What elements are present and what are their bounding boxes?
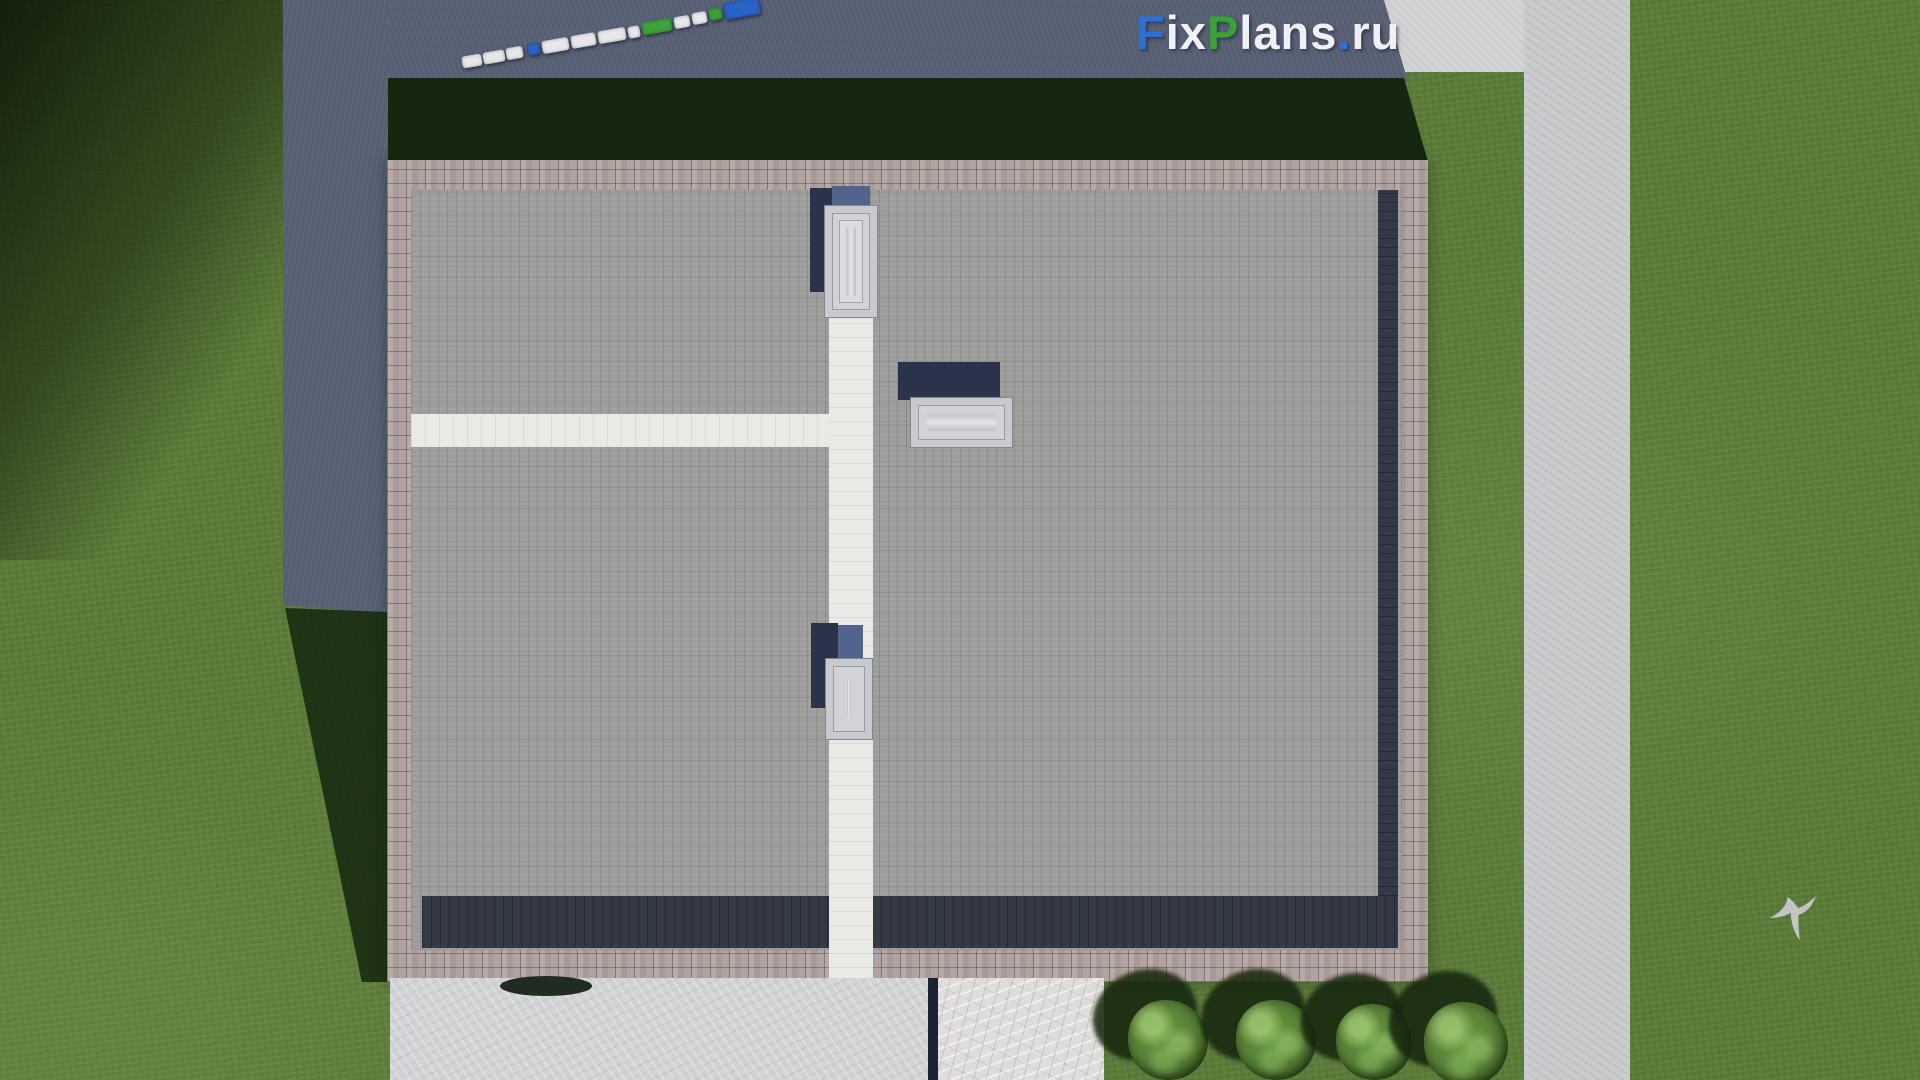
bush	[1336, 1004, 1412, 1080]
watermark-logo: FixPlans.ru	[1136, 4, 1400, 60]
logo-letter: P	[1207, 5, 1239, 60]
skylight-3-shadow-light	[838, 625, 863, 658]
bush	[1424, 1002, 1508, 1080]
skylight-glass	[846, 227, 856, 296]
patio-edge-seam	[928, 978, 938, 1080]
logo-letter: ru	[1351, 5, 1400, 60]
asphalt-road-left	[283, 0, 388, 614]
roof-paver-field	[411, 190, 1402, 950]
roof-dark-band-right	[1378, 190, 1398, 896]
roof-dark-band-bottom	[422, 896, 1398, 948]
sidewalk-right	[1524, 0, 1630, 1080]
house-roof	[387, 160, 1428, 982]
skylight-2-shadow	[898, 362, 1000, 400]
marble-patio	[938, 978, 1104, 1080]
skylight-glass	[927, 414, 996, 431]
driveway-shadow-arc	[500, 976, 592, 996]
logo-letter: F	[1136, 5, 1166, 60]
building-shadow-grass-strip	[388, 78, 1428, 162]
logo-letter: .	[1337, 5, 1351, 60]
bush	[1236, 1000, 1316, 1080]
roof-path-horizontal	[411, 414, 845, 447]
grass-shadow-top-left	[0, 0, 300, 560]
skylight-3	[825, 658, 873, 740]
scene-container: FixPlans.ru	[0, 0, 1920, 1080]
skylight-glass	[847, 680, 851, 718]
skylight-2	[910, 397, 1013, 448]
building-shadow-left	[283, 605, 388, 982]
driveway-concrete	[390, 978, 930, 1080]
logo-letter: ix	[1166, 5, 1207, 60]
flying-bird	[1756, 880, 1832, 956]
logo-letter: lans	[1239, 5, 1337, 60]
bush	[1128, 1000, 1208, 1080]
skylight-1	[824, 205, 878, 318]
